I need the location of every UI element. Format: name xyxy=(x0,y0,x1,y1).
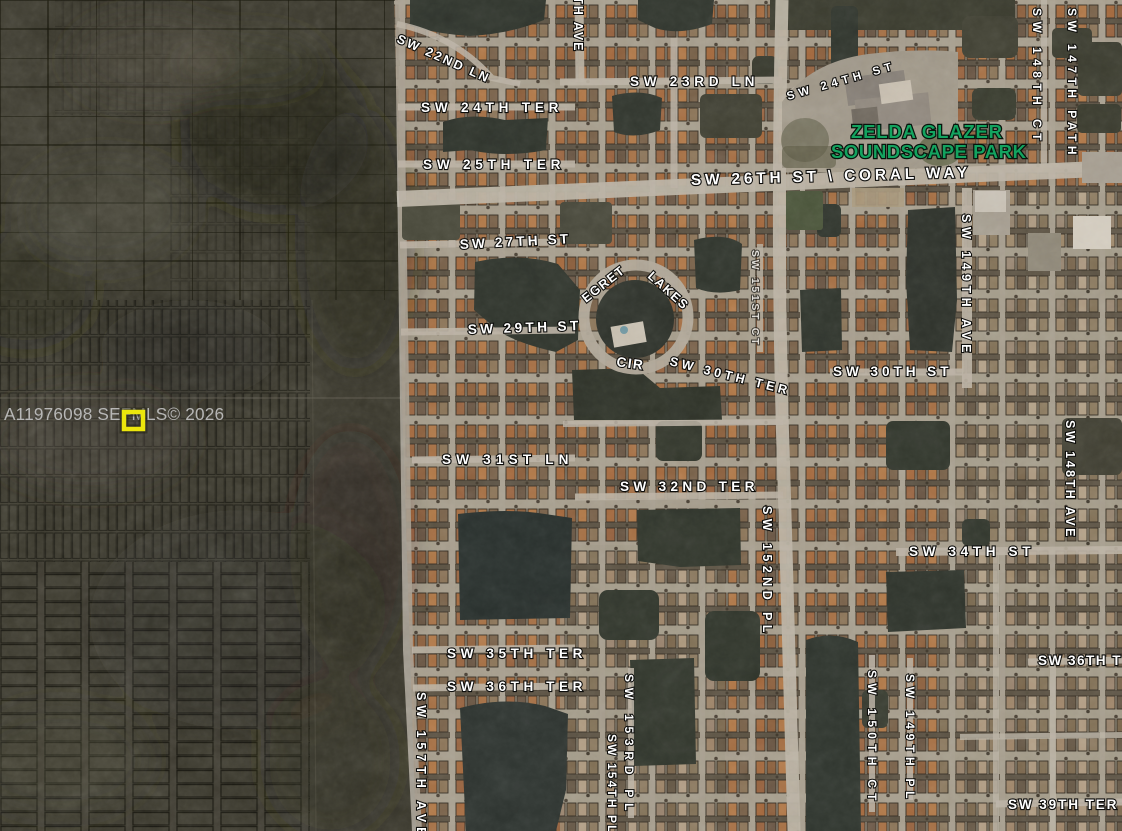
svg-text:SW 24TH TER: SW 24TH TER xyxy=(421,100,560,115)
svg-text:SOUNDSCAPE PARK: SOUNDSCAPE PARK xyxy=(831,141,1027,162)
svg-text:SW 36TH T: SW 36TH T xyxy=(1038,653,1122,668)
svg-text:A11976098 SEFMLS© 2026: A11976098 SEFMLS© 2026 xyxy=(4,404,224,424)
svg-text:SW 150TH CT: SW 150TH CT xyxy=(865,670,879,802)
svg-text:SW 148TH AVE: SW 148TH AVE xyxy=(1063,420,1077,538)
svg-text:SW 152ND PL: SW 152ND PL xyxy=(760,506,774,634)
svg-text:SW 39TH TER: SW 39TH TER xyxy=(1008,797,1118,812)
svg-text:SW 35TH TER: SW 35TH TER xyxy=(447,646,584,661)
svg-text:SW 36TH TER: SW 36TH TER xyxy=(447,679,584,694)
svg-text:SW 154TH PL: SW 154TH PL xyxy=(605,734,619,831)
svg-text:SW 147TH PATH: SW 147TH PATH xyxy=(1065,8,1079,156)
svg-text:SW 32ND TER: SW 32ND TER xyxy=(620,479,756,494)
svg-text:SW 153RD PL: SW 153RD PL xyxy=(622,674,636,812)
svg-text:SW 151ST CT: SW 151ST CT xyxy=(749,250,761,346)
svg-text:SW 155TH AVE: SW 155TH AVE xyxy=(571,0,585,52)
svg-text:ZELDA GLAZER: ZELDA GLAZER xyxy=(851,121,1003,142)
svg-text:SW 148TH CT: SW 148TH CT xyxy=(1030,8,1044,142)
svg-text:SW 157TH AVE: SW 157TH AVE xyxy=(414,692,428,831)
svg-text:SW 25TH TER: SW 25TH TER xyxy=(423,157,562,172)
svg-text:SW 149TH PL: SW 149TH PL xyxy=(903,674,917,800)
